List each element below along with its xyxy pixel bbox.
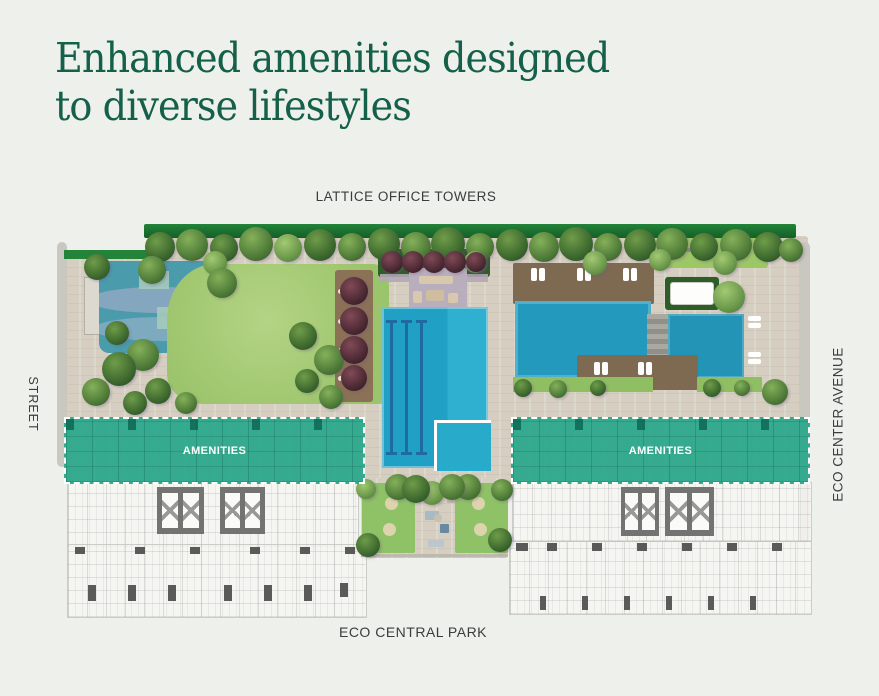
- elevator-shaft: [642, 493, 655, 530]
- tree-icon: [590, 380, 606, 396]
- maroon-tree-icon: [402, 251, 424, 273]
- table-icon: [383, 523, 396, 536]
- tree-icon: [175, 392, 197, 414]
- tree-icon: [549, 380, 567, 398]
- wall-marker: [516, 543, 528, 551]
- door-marker: [224, 585, 232, 601]
- elevator-shaft: [162, 493, 178, 528]
- lounger-icon: [748, 323, 761, 328]
- tree-icon: [491, 479, 513, 501]
- elevator-shaft: [670, 493, 687, 530]
- amenities-overlay-left-label: AMENITIES: [183, 445, 247, 457]
- tree-icon: [529, 232, 559, 262]
- slide: Enhanced amenities designed to diverse l…: [0, 0, 879, 696]
- maroon-tree-icon: [341, 365, 367, 391]
- wall-marker: [135, 547, 145, 554]
- elevator-core: [220, 487, 265, 534]
- lounger-icon: [539, 268, 545, 281]
- door-marker: [750, 596, 756, 610]
- lounger-icon: [748, 359, 761, 364]
- wall-marker: [300, 547, 310, 554]
- elevator-shaft: [225, 493, 240, 528]
- wall-marker: [637, 543, 647, 551]
- maroon-tree-icon: [423, 251, 445, 273]
- tree-icon: [356, 533, 380, 557]
- door-marker: [624, 596, 630, 610]
- chair-icon: [448, 293, 458, 303]
- lounger-icon: [748, 352, 761, 357]
- tree-icon: [703, 379, 721, 397]
- residential-floorplan-right-lower: [509, 541, 812, 615]
- wall-marker: [250, 547, 260, 554]
- lounger-icon: [594, 362, 600, 375]
- door-marker: [666, 596, 672, 610]
- amenities-overlay-left: AMENITIES: [64, 417, 365, 484]
- amenities-overlay-right-label: AMENITIES: [629, 445, 693, 457]
- lounger-icon: [577, 268, 583, 281]
- tree-icon: [123, 391, 147, 415]
- maroon-tree-icon: [340, 336, 368, 364]
- elevator-shaft: [625, 493, 638, 530]
- label-lattice-office-towers: LATTICE OFFICE TOWERS: [306, 189, 506, 204]
- kids-pool: [434, 420, 491, 471]
- label-eco-central-park: ECO CENTRAL PARK: [313, 624, 513, 640]
- tree-icon: [84, 254, 110, 280]
- door-marker: [340, 583, 348, 597]
- door-marker: [128, 585, 136, 601]
- tree-icon: [145, 378, 171, 404]
- tree-icon: [176, 229, 208, 261]
- door-marker: [540, 596, 546, 610]
- table-icon: [474, 523, 487, 536]
- maroon-tree-icon: [444, 251, 466, 273]
- maroon-tree-icon: [466, 252, 486, 272]
- tree-icon: [274, 234, 302, 262]
- tree-icon: [82, 378, 110, 406]
- tree-icon: [338, 233, 366, 261]
- maroon-tree-icon: [381, 251, 403, 273]
- maroon-tree-icon: [340, 277, 368, 305]
- tree-icon: [734, 380, 750, 396]
- elevator-core: [665, 487, 714, 536]
- title-line-2: to diverse lifestyles: [55, 82, 609, 130]
- tree-icon: [289, 322, 317, 350]
- maroon-tree-icon: [340, 307, 368, 335]
- tree-icon: [304, 229, 336, 261]
- door-marker: [88, 585, 96, 601]
- pool-lane-line: [420, 321, 423, 454]
- tree-icon: [295, 369, 319, 393]
- lounger-icon: [646, 362, 652, 375]
- tree-icon: [402, 475, 430, 503]
- door-marker: [168, 585, 176, 601]
- elevator-shaft: [692, 493, 709, 530]
- lounger-icon: [623, 268, 629, 281]
- amenities-overlay-right: AMENITIES: [511, 417, 810, 484]
- wall-marker: [547, 543, 557, 551]
- courtyard-edge: [361, 554, 508, 557]
- door-marker: [582, 596, 588, 610]
- table-icon: [426, 290, 444, 301]
- tree-icon: [239, 227, 273, 261]
- lounger-icon: [631, 268, 637, 281]
- residential-floorplan-right-upper: [512, 482, 812, 542]
- tree-icon: [439, 474, 465, 500]
- door-marker: [304, 585, 312, 601]
- playground-icon: [428, 540, 444, 547]
- lounger-icon: [531, 268, 537, 281]
- tree-icon: [319, 385, 343, 409]
- wall-marker: [772, 543, 782, 551]
- spa: [671, 283, 713, 304]
- wall-marker: [75, 547, 85, 554]
- elevator-core: [157, 487, 204, 534]
- elevator-core: [621, 487, 659, 536]
- label-street: STREET: [26, 369, 40, 439]
- tree-icon: [102, 352, 136, 386]
- lounger-icon: [638, 362, 644, 375]
- playground-icon: [434, 514, 442, 522]
- wall-marker: [727, 543, 737, 551]
- tree-icon: [713, 251, 737, 275]
- pool-lane-line: [405, 321, 408, 454]
- door-marker: [264, 585, 272, 601]
- elevator-shaft: [245, 493, 260, 528]
- wall-marker: [592, 543, 602, 551]
- tree-icon: [779, 238, 803, 262]
- tree-icon: [105, 321, 129, 345]
- door-marker: [708, 596, 714, 610]
- tree-icon: [488, 528, 512, 552]
- tree-icon: [649, 249, 671, 271]
- elevator-shaft: [183, 493, 199, 528]
- label-eco-center-avenue: ECO CENTER AVENUE: [831, 340, 846, 510]
- residential-floorplan-left-upper: [67, 482, 359, 547]
- lap-pool: [382, 307, 488, 468]
- page-title: Enhanced amenities designed to diverse l…: [55, 34, 609, 131]
- sofa-icon: [419, 276, 453, 284]
- tree-icon: [762, 379, 788, 405]
- pool-lane-line: [390, 321, 393, 454]
- title-line-1: Enhanced amenities designed: [55, 34, 609, 82]
- tree-icon: [713, 281, 745, 313]
- tree-icon: [138, 256, 166, 284]
- table-icon: [472, 497, 485, 510]
- chair-icon: [413, 291, 422, 303]
- tree-icon: [496, 229, 528, 261]
- lounger-icon: [602, 362, 608, 375]
- planting-strip: [513, 377, 653, 392]
- tree-icon: [514, 379, 532, 397]
- playground-icon: [440, 524, 449, 533]
- lounger-icon: [748, 316, 761, 321]
- wall-marker: [682, 543, 692, 551]
- wall-marker: [190, 547, 200, 554]
- wall-marker: [345, 547, 355, 554]
- tree-icon: [207, 268, 237, 298]
- tree-icon: [583, 251, 607, 275]
- residential-floorplan-left-lower: [67, 544, 367, 618]
